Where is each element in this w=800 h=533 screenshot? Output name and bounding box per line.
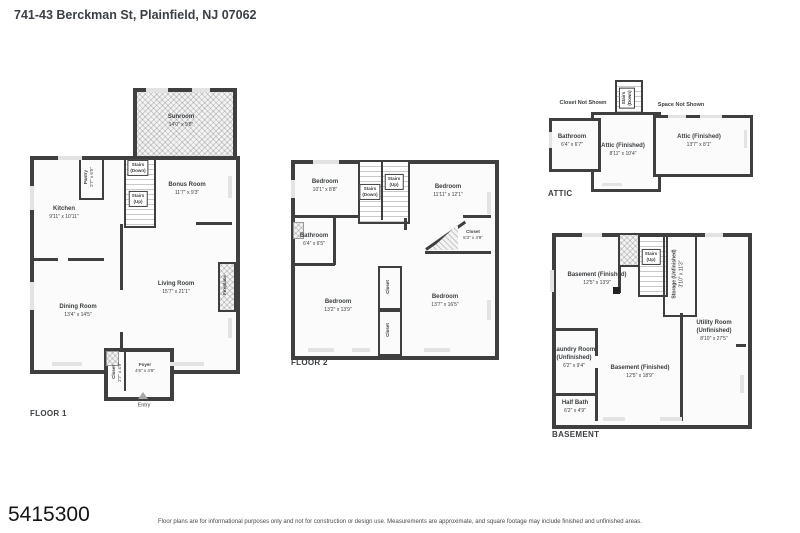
window-marker [582, 233, 602, 237]
window-marker [146, 88, 168, 92]
basement-utility-label: Utility Room(Unfinished)8'10" x 27'5" [696, 320, 731, 342]
floor1-dining-label: Dining Room13'4" x 14'5" [59, 304, 96, 318]
window-marker [700, 115, 722, 118]
mls-number: 5415300 [8, 503, 90, 527]
window-marker [52, 362, 82, 366]
floor1-stairs-up-label: Stairs (Up) [129, 191, 148, 207]
wall-segment [404, 218, 407, 230]
wall-segment [463, 215, 491, 218]
floor2-bed3-label: Bedroom13'2" x 13'9" [324, 299, 351, 313]
attic-stairs-down-label: Stairs (Down) [619, 87, 635, 108]
basement-finished1-label: Basement (Finished)12'5" x 13'9" [567, 272, 626, 286]
attic-finished1-label: Attic (Finished)8'11" x 10'4" [601, 143, 645, 157]
window-marker [550, 270, 554, 292]
floor1-fireplace-label: Fireplace [222, 275, 228, 295]
basement-laundry-label: Laundry Room(Unfinished)6'2" x 9'4" [553, 347, 595, 369]
window-marker [170, 362, 204, 366]
window-marker [30, 186, 34, 210]
window-marker [424, 348, 450, 352]
floor1-stairs-down-label: Stairs (Down) [127, 160, 148, 176]
attic-bathroom-label: Bathroom6'4" x 6'7" [558, 134, 586, 148]
window-marker [705, 233, 723, 237]
basement-halfbath-label: Half Bath6'2" x 4'9" [562, 400, 588, 414]
wall-segment [425, 251, 491, 254]
wall-segment [552, 393, 596, 396]
floor1-kitchen-label: Kitchen9'11" x 10'11" [49, 206, 78, 220]
furnace-marker [613, 287, 620, 294]
floor2-stairs-up-label: Stairs (Up) [385, 174, 404, 190]
wall-segment [552, 328, 598, 331]
floor1-sunroom-label: Sunroom14'0" x 9'8" [168, 114, 194, 128]
floorplan-sheet: 741-43 Berckman St, Plainfield, NJ 07062… [0, 0, 800, 533]
floor1-foyer-label: Foyer4'6" x 4'9" [135, 362, 155, 374]
wall-segment [291, 215, 358, 218]
window-marker [228, 176, 232, 198]
window-marker [308, 348, 334, 352]
wall-segment [68, 258, 104, 261]
entry-arrow-icon [138, 392, 148, 399]
basement-finished2-label: Basement (Finished)12'5" x 18'9" [610, 365, 669, 379]
disclaimer-text: Floor plans are for informational purpos… [158, 519, 642, 525]
window-marker [30, 282, 34, 310]
window-marker [487, 192, 491, 214]
wall-segment [120, 224, 123, 290]
floor2-closet-right-label: Closet5'3" x 4'9" [463, 229, 483, 241]
basement-storage-label: Storage (Unfinished)3'10" x 11'3" [672, 249, 685, 298]
wall-segment [196, 222, 232, 225]
floor1-bonus-label: Bonus Room11'7" x 9'3" [168, 182, 205, 196]
floor1-title: FLOOR 1 [30, 409, 67, 418]
wall-segment [680, 313, 683, 421]
floor2-bed2-label: Bedroom11'11" x 12'1" [433, 184, 462, 198]
floor1-living-label: Living Room15'7" x 21'1" [158, 281, 194, 295]
window-marker [602, 183, 622, 186]
wall-segment [736, 344, 746, 347]
floor2-closet-a-label: Closet [385, 280, 391, 294]
floor2-closet-b-label: Closet [385, 323, 391, 337]
attic-finished2-label: Attic (Finished)13'7" x 8'1" [677, 134, 721, 148]
window-marker [487, 300, 491, 320]
wall-segment [124, 350, 126, 391]
basement-stairs-up-label: Stairs (Up) [642, 249, 661, 265]
wall-segment [291, 263, 335, 266]
floor2-stairs-down-label: Stairs (Down) [359, 184, 380, 200]
window-marker [228, 318, 232, 338]
window-marker [603, 417, 625, 421]
attic-space-note: Space Not Shown [658, 102, 704, 108]
basement-title: BASEMENT [552, 430, 599, 439]
floor1-pantry-label: Pantry2'7" x 6'5" [83, 167, 95, 187]
floor2-bathroom-label: Bathroom6'4" x 6'5" [300, 233, 328, 247]
window-marker [549, 132, 552, 148]
attic-title: ATTIC [548, 189, 572, 198]
window-marker [668, 115, 686, 118]
wall-segment [381, 160, 383, 220]
window-marker [313, 160, 339, 164]
window-marker [744, 130, 747, 148]
window-marker [58, 156, 82, 160]
floor1-entry-label: Entry [138, 402, 151, 409]
floor1-closet-label: Closet2'7" x 4'9" [111, 362, 123, 382]
floor2-bed4-label: Bedroom13'7" x 16'5" [431, 294, 458, 308]
wall-segment [595, 328, 598, 356]
window-marker [660, 417, 682, 421]
window-marker [291, 180, 295, 198]
window-marker [740, 375, 744, 393]
page-title: 741-43 Berckman St, Plainfield, NJ 07062 [14, 8, 257, 22]
wall-segment [333, 215, 336, 265]
window-marker [352, 348, 370, 352]
window-marker [192, 88, 210, 92]
attic-closet-note: Closet Not Shown [559, 100, 606, 106]
floor2-title: FLOOR 2 [291, 358, 328, 367]
floor2-bed1-label: Bedroom10'1" x 8'8" [312, 179, 338, 193]
wall-segment [30, 258, 58, 261]
